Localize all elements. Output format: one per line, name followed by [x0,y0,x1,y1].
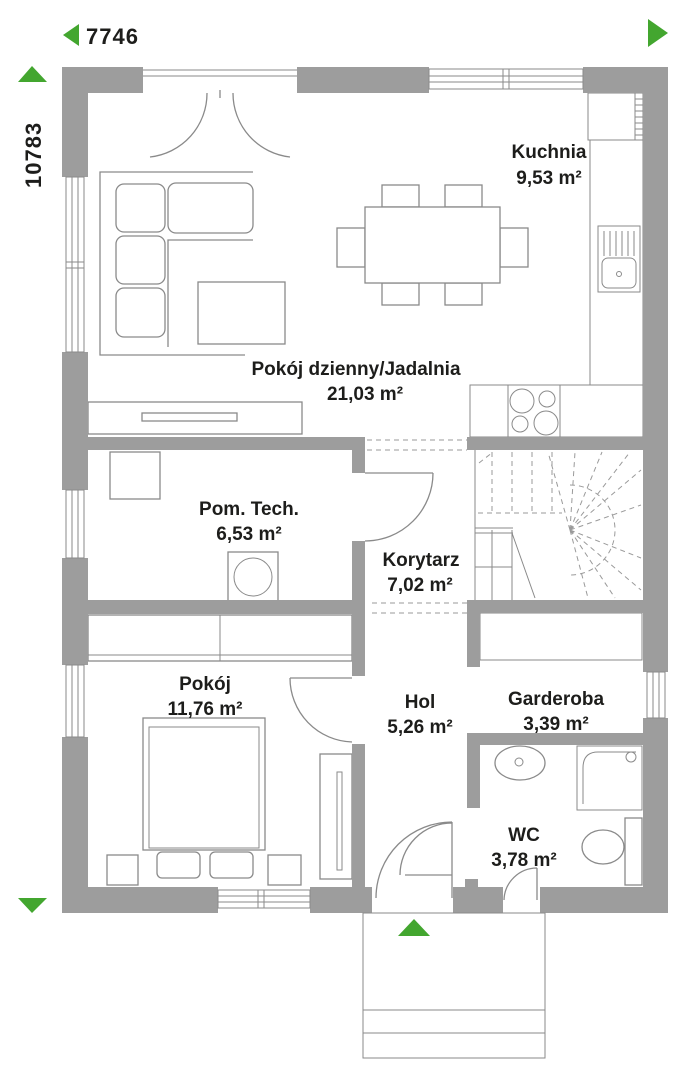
wall-hol-garderoba [467,613,480,667]
wall-tech-bedroom [88,600,365,614]
burner [534,411,558,435]
room-label-pokoj: Pokój [179,674,231,695]
wall-bedroom-hol [352,744,365,887]
room-area-wc: 3,78 m² [491,850,556,871]
window-tech-left [66,490,84,558]
wall-bottom [540,887,668,913]
pillow [210,852,253,878]
wall-bottom [453,887,503,913]
room-label-pokoj-dzienny: Pokój dzienny/Jadalnia [251,359,460,380]
room-label-pom-tech: Pom. Tech. [199,499,299,520]
french-door-sill [143,70,297,76]
sofa-cushion [116,184,165,232]
wall-bottom [310,887,372,913]
door-bedroom [290,678,352,742]
nightstand [268,855,301,885]
window-garderoba-right [647,672,665,718]
shower-drain [626,752,636,762]
wall-left [62,558,88,665]
porch-steps [363,1010,545,1033]
dining-chair [382,283,419,305]
width-dimension-label: 7746 [86,24,139,49]
window-living-left [66,177,84,352]
height-dimension-label: 10783 [21,122,46,188]
window-bedroom-bottom [218,890,310,908]
door-tech-room [365,473,433,541]
opening-living-korytarz [367,440,467,450]
dimension-arrow-down-icon [18,898,47,913]
wall-left [62,352,88,490]
room-label-garderoba: Garderoba [508,689,605,710]
dining-chair [382,185,419,207]
wall-hol-wc [467,745,480,808]
french-door-terrace [150,90,290,157]
sofa-cushion [116,236,165,284]
nightstand [107,855,138,885]
sofa-chaise [168,183,253,233]
toilet-bowl [582,830,624,864]
tv [142,413,237,421]
room-area-pokoj-dzienny: 21,03 m² [327,384,403,405]
door-wc [504,868,537,900]
dimension-arrow-left-icon [63,24,79,46]
porch-outline [363,913,545,1058]
wall-notch [465,879,478,887]
wall-bottom [62,887,218,913]
sink-basin [602,258,636,288]
sink-tap [617,272,622,277]
sofa-cushion [116,288,165,337]
wall-top [297,67,429,93]
stairs-walkline [570,485,615,575]
washing-machine [228,552,278,602]
room-area-hol: 5,26 m² [387,717,452,738]
washbasin [495,746,545,780]
entrance-arrow-icon [398,919,430,936]
burner [510,389,534,413]
wall-bedroom-hol [352,614,365,676]
room-area-garderoba: 3,39 m² [523,714,588,735]
floor-plan-page: 7746 10783 Kuchnia 9,53 m² Pokój dzienny… [0,0,692,1080]
room-area-korytarz: 7,02 m² [387,575,452,596]
floor-plan-svg: 7746 10783 Kuchnia 9,53 m² Pokój dzienny… [0,0,692,1080]
room-area-pom-tech: 6,53 m² [216,524,281,545]
burner [512,416,528,432]
room-label-kuchnia: Kuchnia [512,142,587,163]
dimension-arrow-right-icon [648,19,668,47]
wall-stairs-top [467,437,643,450]
wall-tech-korytarz [352,450,365,473]
sink-drainer-lines [604,231,634,256]
entrance-porch [363,913,545,1058]
wall-tech-korytarz [352,541,365,607]
room-area-kuchnia: 9,53 m² [516,168,581,189]
tech-shelf [110,452,160,499]
toilet-cistern [625,818,642,885]
tall-wardrobe [320,754,352,879]
dining-chair [500,228,528,267]
door-entrance [376,822,452,898]
room-label-wc: WC [508,825,540,846]
burner [539,391,555,407]
pillow [157,852,200,878]
room-area-pokoj: 11,76 m² [168,699,243,720]
stairs [475,450,641,600]
wall-living-tech [88,437,365,450]
window-bedroom-left [66,665,84,737]
wall-right [643,718,668,913]
wall-left [62,67,88,177]
stairs-dashed-steps [478,452,562,513]
bed [143,718,265,850]
dining-chair [337,228,365,267]
fridge-hatch-lines [635,99,643,135]
dining-table [365,207,500,283]
coffee-table [198,282,285,344]
wall-right [643,67,668,672]
stairs-winder-rays [548,452,641,598]
window-top [429,69,583,89]
garderoba-fixtures [480,613,642,660]
dining-chair [445,185,482,207]
wall-stairs-bottom [467,600,643,613]
dimension-arrow-up-icon [18,66,47,82]
living-room-furniture [88,172,528,434]
closet [480,613,642,660]
bedroom-furniture [88,615,352,885]
opening-korytarz-hol [372,603,467,613]
shower-inner-line [583,752,636,804]
dining-chair [445,283,482,305]
room-label-korytarz: Korytarz [382,550,459,571]
stairs-solid-steps [475,450,535,600]
wall-left [62,737,88,887]
room-label-hol: Hol [405,692,436,713]
